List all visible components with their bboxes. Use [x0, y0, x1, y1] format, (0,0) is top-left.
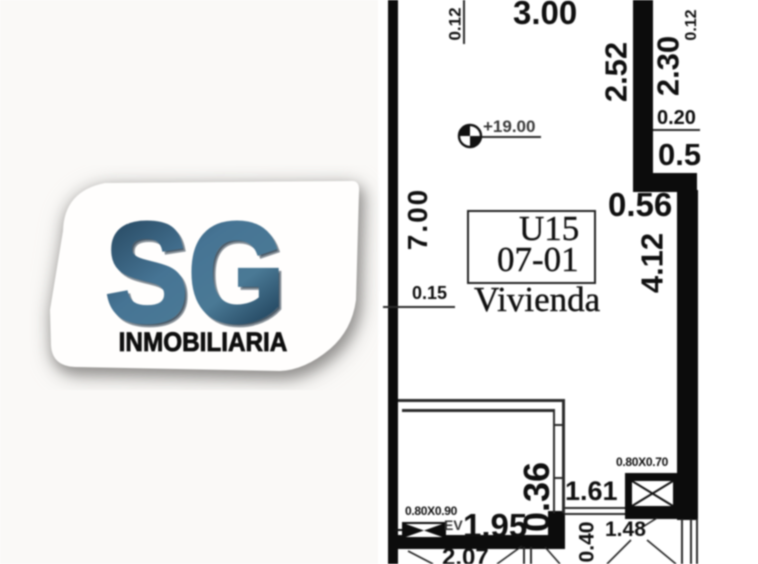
- svg-text:INMOBILIARIA: INMOBILIARIA: [119, 328, 288, 357]
